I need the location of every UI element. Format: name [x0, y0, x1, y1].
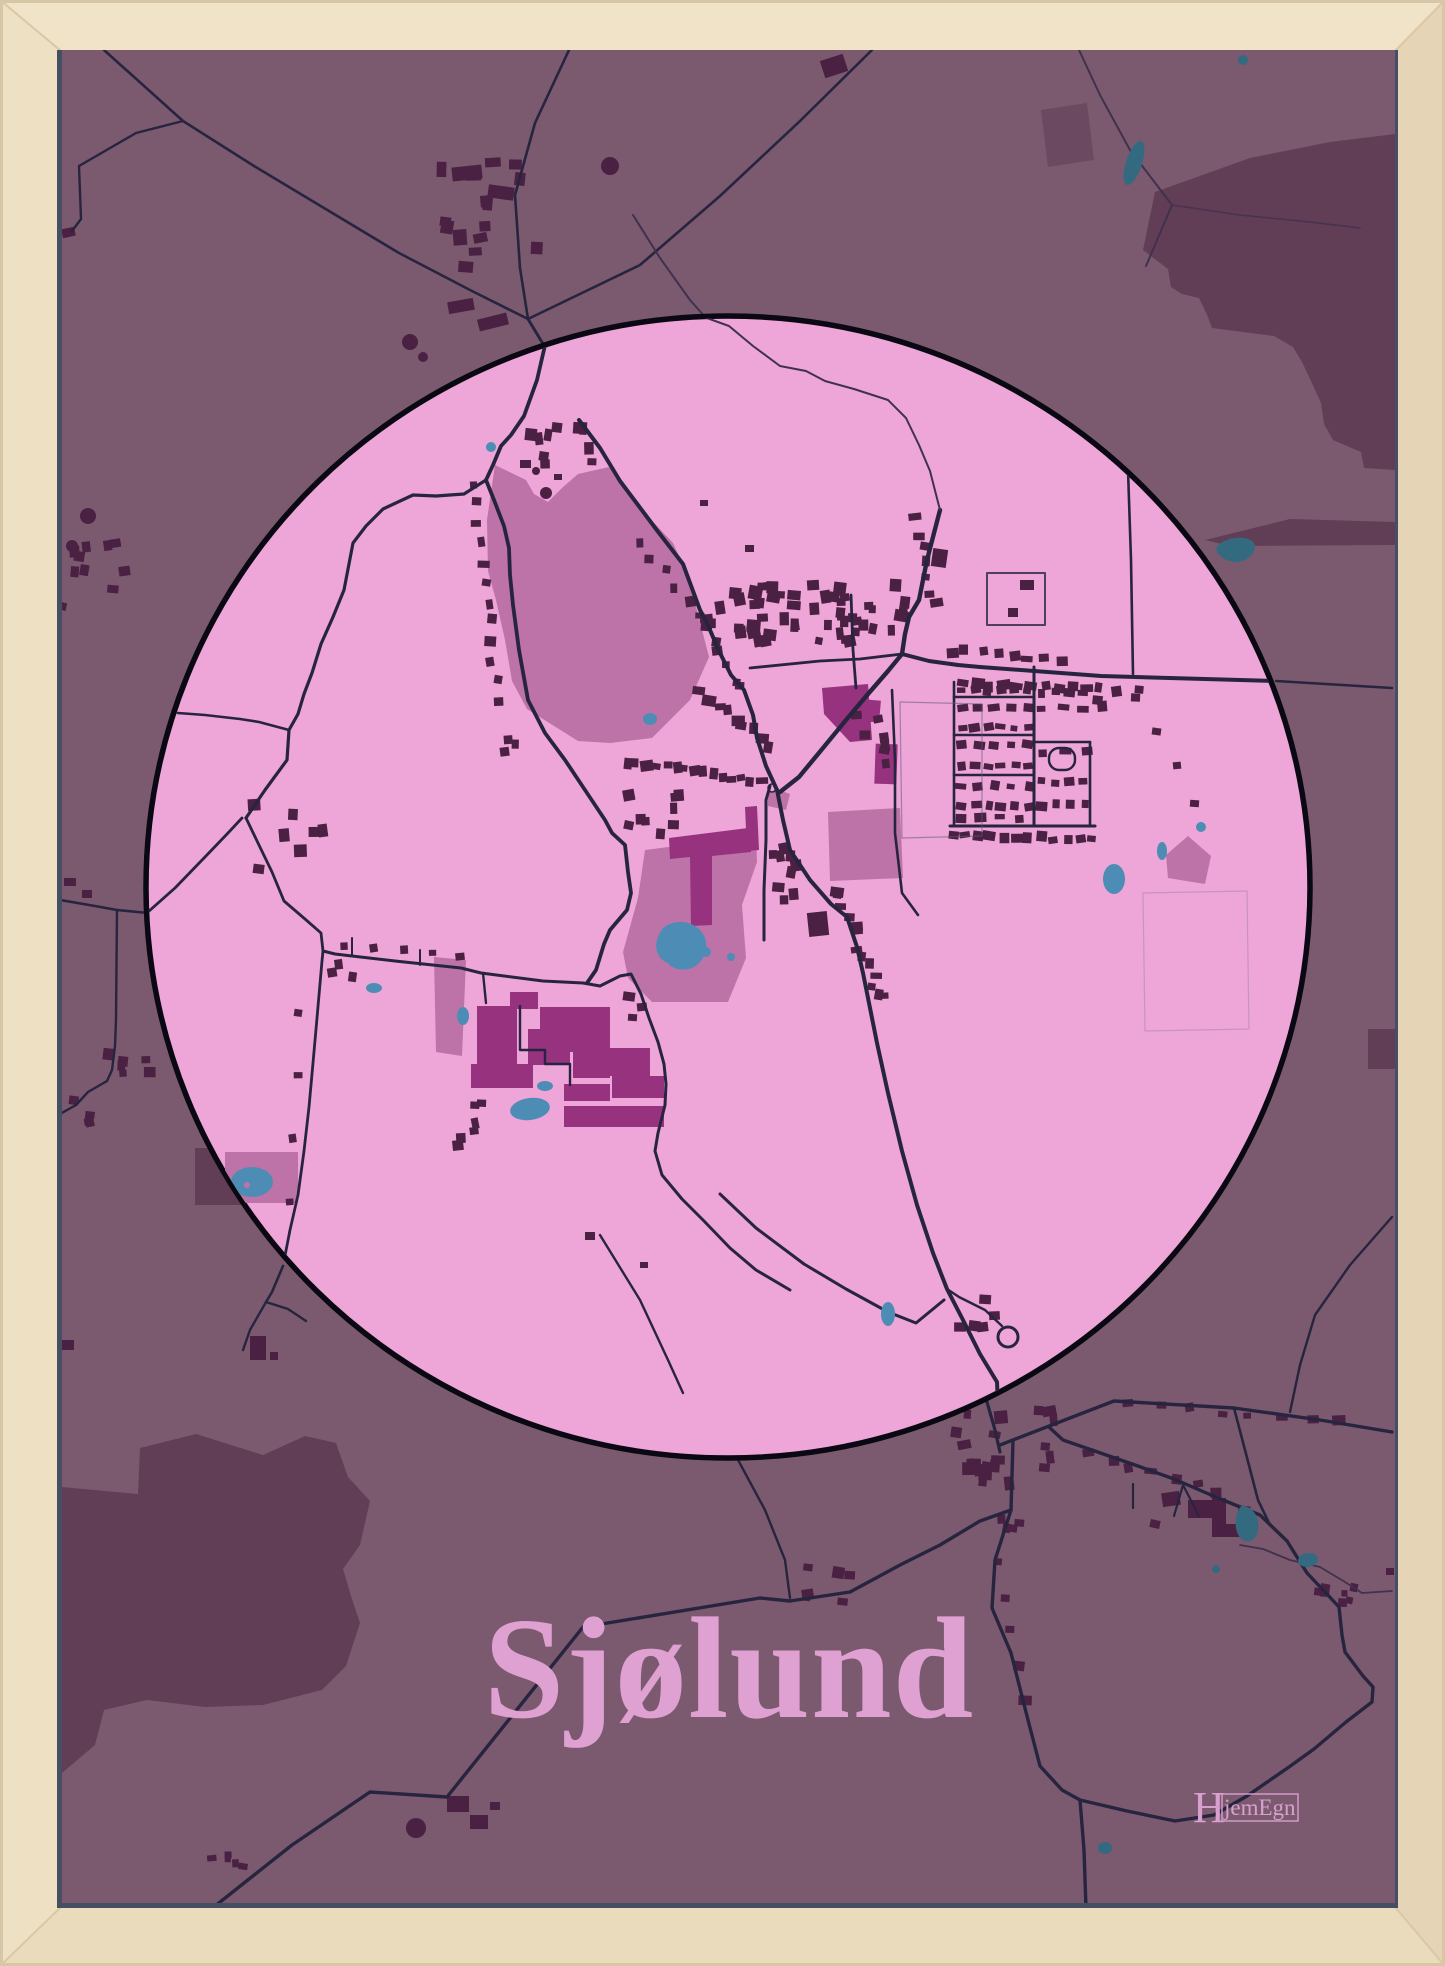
svg-text:H: H [1193, 1783, 1225, 1832]
svg-text:jemEgn: jemEgn [1223, 1795, 1296, 1820]
svg-text:Sjølund: Sjølund [484, 1589, 975, 1749]
